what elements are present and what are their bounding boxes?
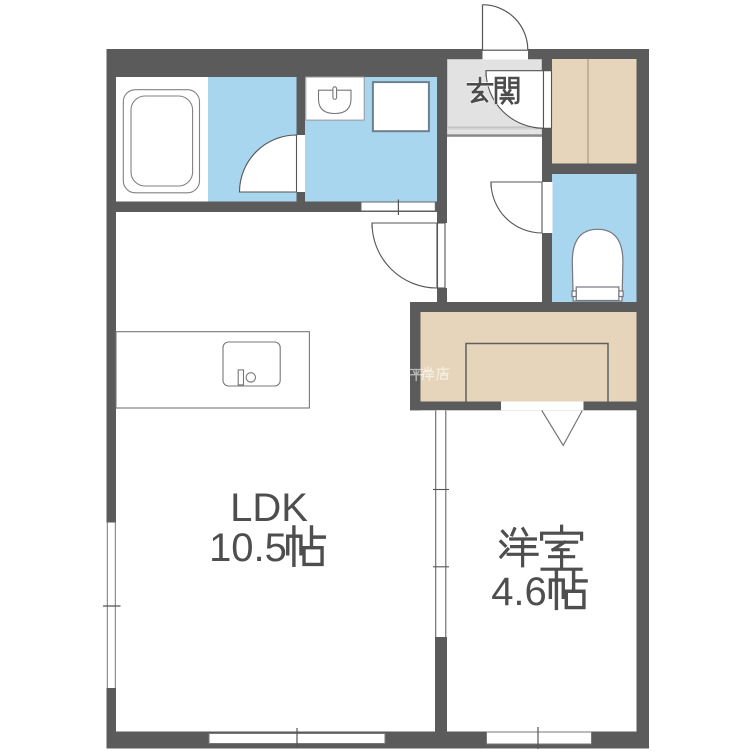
svg-text:LDK: LDK bbox=[230, 486, 308, 530]
svg-text:10.5: 10.5 bbox=[209, 526, 287, 570]
svg-text:4.6: 4.6 bbox=[491, 570, 547, 614]
